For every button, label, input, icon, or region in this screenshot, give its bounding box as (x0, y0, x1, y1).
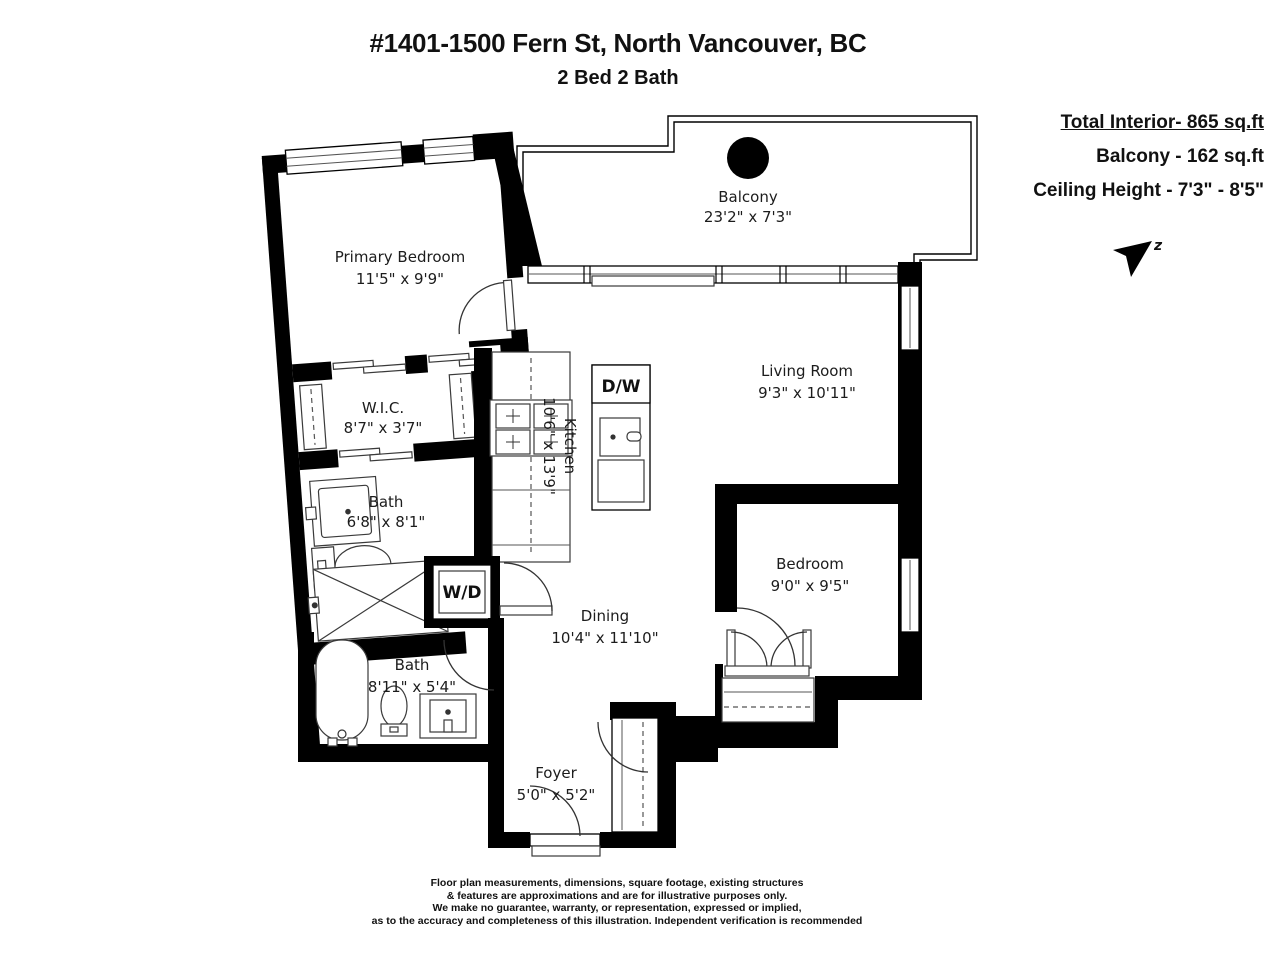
disclaimer-line: as to the accuracy and completeness of t… (0, 915, 1234, 928)
foyer-closet (612, 718, 658, 832)
balcony-label: Balcony (718, 188, 778, 206)
disclaimer: Floor plan measurements, dimensions, squ… (0, 877, 1234, 927)
right-exterior-wall (898, 262, 922, 700)
floor-plan-canvas: Balcony 23'2" x 7'3" (0, 0, 1280, 960)
living-room-dims: 9'3" x 10'11" (758, 384, 856, 402)
bedroom-window (423, 136, 475, 164)
main-bath-label: Bath (395, 656, 430, 674)
north-letter: z (1153, 238, 1163, 254)
bedroom-window (285, 142, 402, 174)
kitchen-name: Kitchen (561, 418, 579, 474)
laundry-nook: W/D (424, 556, 500, 628)
disclaimer-line: & features are approximations and are fo… (0, 890, 1234, 903)
kitchen-dims: 10'6" x 13'9" (540, 397, 558, 495)
main-bath-dims: 8'11" x 5'4" (368, 678, 456, 696)
balcony-dims: 23'2" x 7'3" (704, 208, 792, 226)
living-room-label: Living Room (761, 362, 853, 380)
island-sink-icon (600, 418, 641, 456)
disclaimer-line: Floor plan measurements, dimensions, squ… (0, 877, 1234, 890)
room-foyer: Foyer 5'0" x 5'2" (488, 702, 718, 856)
balcony-table-icon (727, 137, 769, 179)
foyer-label: Foyer (535, 764, 577, 782)
wic-dims: 8'7" x 3'7" (344, 419, 423, 437)
foyer-dims: 5'0" x 5'2" (517, 786, 596, 804)
ensuite-bath-dims: 6'8" x 8'1" (347, 513, 426, 531)
room-balcony: Balcony 23'2" x 7'3" (517, 116, 977, 266)
entry-threshold (530, 834, 600, 846)
ensuite-bath-label: Bath (369, 493, 404, 511)
stove-icon (490, 400, 572, 456)
bathtub-icon (316, 640, 368, 746)
dishwasher-label: D/W (601, 377, 640, 397)
primary-bedroom-door (456, 280, 516, 334)
north-arrow-icon: z (1113, 238, 1163, 277)
bedroom-dims: 9'0" x 9'5" (771, 577, 850, 595)
kitchen-island: D/W (592, 365, 650, 510)
washer-dryer-label: W/D (442, 583, 481, 603)
bedroom-doors (725, 608, 811, 676)
vanity-sink-icon (420, 694, 476, 738)
bedroom-label: Bedroom (776, 555, 844, 573)
ensuite-vanity-sink-icon (304, 477, 381, 547)
hall-door (500, 563, 552, 615)
wic-label: W.I.C. (362, 399, 404, 417)
disclaimer-line: We make no guarantee, warranty, or repre… (0, 902, 1234, 915)
sliding-door-panel (592, 276, 714, 286)
bedroom-closet (722, 678, 814, 722)
dining-dims: 10'4" x 11'10" (551, 629, 658, 647)
dining-label: Dining (581, 607, 629, 625)
primary-bedroom-dims: 11'5" x 9'9" (356, 270, 444, 288)
primary-bedroom-label: Primary Bedroom (335, 248, 466, 266)
